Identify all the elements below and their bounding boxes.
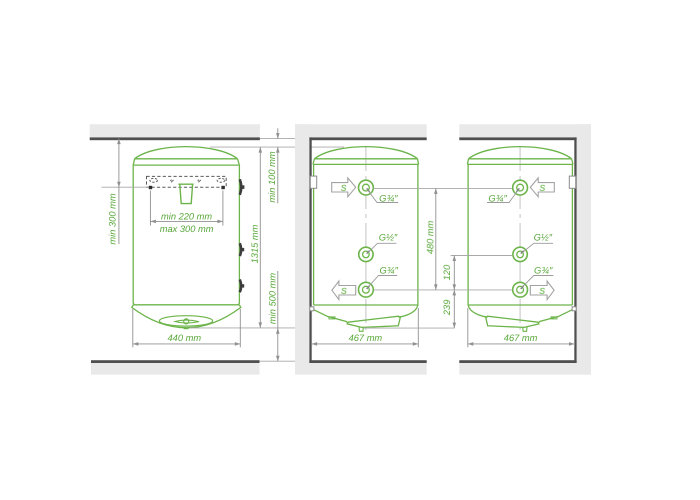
svg-text:239: 239 — [442, 300, 452, 317]
svg-text:467 mm: 467 mm — [349, 333, 383, 343]
svg-text:G¾″: G¾″ — [379, 264, 398, 275]
svg-text:S: S — [341, 183, 347, 193]
svg-text:min 100 mm: min 100 mm — [267, 151, 277, 202]
svg-text:440 mm: 440 mm — [168, 333, 202, 343]
svg-text:G½″: G½″ — [379, 232, 398, 243]
svg-text:S: S — [539, 183, 545, 193]
svg-text:min 500 mm: min 500 mm — [268, 273, 278, 324]
svg-text:min 300 mm: min 300 mm — [108, 193, 118, 244]
svg-text:467 mm: 467 mm — [504, 333, 538, 343]
svg-text:S: S — [341, 286, 347, 296]
svg-text:G¾″: G¾″ — [488, 192, 507, 203]
svg-text:min 220 mm: min 220 mm — [161, 212, 212, 222]
svg-text:max 300 mm: max 300 mm — [160, 224, 214, 234]
svg-text:S: S — [539, 286, 545, 296]
svg-text:480 mm: 480 mm — [425, 220, 435, 254]
svg-text:G¾″: G¾″ — [534, 264, 553, 275]
svg-text:G¾″: G¾″ — [379, 192, 398, 203]
svg-text:1315 mm: 1315 mm — [250, 224, 260, 263]
svg-text:G½″: G½″ — [534, 232, 553, 243]
svg-text:120: 120 — [442, 264, 452, 280]
